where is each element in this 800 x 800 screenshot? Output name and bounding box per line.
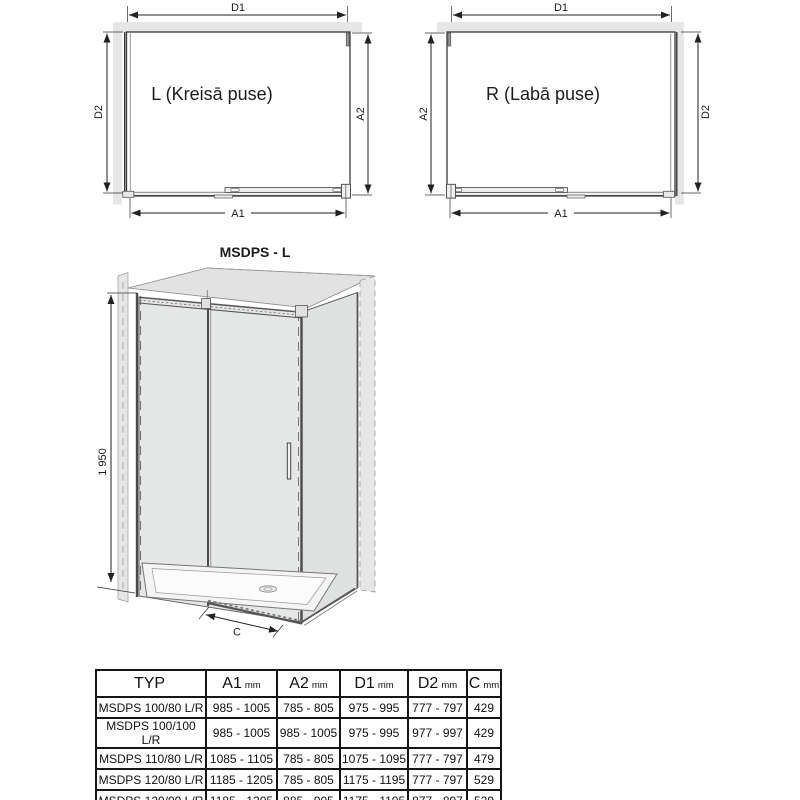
- header-a1: A1mm: [206, 670, 277, 697]
- dimension-table: TYP A1mm A2mm D1mm D2mm Cmm MSDPS 100/80…: [95, 669, 502, 800]
- enclosure-outline: [447, 32, 677, 196]
- iso-title: MSDPS - L: [220, 244, 291, 260]
- side-label-left: L (Kreisā puse): [151, 84, 272, 104]
- dim-label-d1: D1: [554, 2, 568, 14]
- spec-table: TYP A1mm A2mm D1mm D2mm Cmm MSDPS 100/80…: [95, 669, 502, 800]
- dim-label-a2: A2: [418, 107, 430, 120]
- cell-a1: 1185 - 1205: [206, 769, 277, 790]
- cell-d2: 977 - 997: [408, 718, 467, 748]
- dimension-height: 1 950: [97, 293, 137, 593]
- dim-label-height: 1 950: [97, 448, 109, 476]
- dim-label-a2: A2: [355, 107, 367, 120]
- header-d2: D2mm: [408, 670, 467, 697]
- cell-a1: 985 - 1005: [206, 697, 277, 718]
- cell-typ: MSDPS 100/80 L/R: [96, 697, 206, 718]
- dim-label-a1: A1: [231, 208, 244, 220]
- cell-a2: 785 - 805: [277, 769, 340, 790]
- dimension-d1: D1: [452, 2, 672, 22]
- dimension-a1: A1: [130, 198, 346, 220]
- cell-c: 479: [467, 748, 501, 769]
- enclosure-outline: [125, 32, 350, 196]
- cell-a1: 1085 - 1105: [206, 748, 277, 769]
- isometric-view: MSDPS - L: [85, 240, 415, 665]
- wall-right: [360, 276, 375, 592]
- cell-c: 529: [467, 790, 501, 800]
- cell-a2: 985 - 1005: [277, 718, 340, 748]
- header-a2: A2mm: [277, 670, 340, 697]
- left-elevation-diagram: D1 D2 A2 A1 L (Kreisā puse): [90, 0, 380, 225]
- table-row: MSDPS 110/80 L/R 1085 - 1105 785 - 805 1…: [96, 748, 501, 769]
- cell-c: 429: [467, 697, 501, 718]
- cell-a2: 785 - 805: [277, 697, 340, 718]
- table-row: MSDPS 100/100 L/R 985 - 1005 985 - 1005 …: [96, 718, 501, 748]
- cell-d1: 1175 - 1195: [340, 790, 408, 800]
- technical-sheet: D1 D2 A2 A1 L (Kreisā puse): [0, 0, 800, 800]
- dimension-a1: A1: [450, 198, 671, 220]
- cell-typ: MSDPS 120/80 L/R: [96, 769, 206, 790]
- door-handle: [287, 443, 290, 479]
- cell-d1: 975 - 995: [340, 697, 408, 718]
- cell-a2: 785 - 805: [277, 748, 340, 769]
- dim-label-a1: A1: [554, 208, 567, 220]
- cell-a2: 885 - 905: [277, 790, 340, 800]
- cell-d1: 1175 - 1195: [340, 769, 408, 790]
- dimension-d1: D1: [128, 2, 348, 22]
- cell-d1: 1075 - 1095: [340, 748, 408, 769]
- header-d1: D1mm: [340, 670, 408, 697]
- wall-left: [118, 273, 128, 603]
- right-elevation-diagram: D1 A2 D2 A1 R (Labā puse): [415, 0, 710, 225]
- wall-band: [113, 22, 362, 205]
- cell-typ: MSDPS 120/90 L/R: [96, 790, 206, 800]
- cell-c: 429: [467, 718, 501, 748]
- wall-band: [437, 22, 684, 205]
- cell-a1: 985 - 1005: [206, 718, 277, 748]
- cell-typ: MSDPS 110/80 L/R: [96, 748, 206, 769]
- header-typ: TYP: [96, 670, 206, 697]
- table-row: MSDPS 120/80 L/R 1185 - 1205 785 - 805 1…: [96, 769, 501, 790]
- dim-label-d2: D2: [93, 105, 105, 119]
- cell-d2: 877 - 897: [408, 790, 467, 800]
- cell-d2: 777 - 797: [408, 697, 467, 718]
- cell-typ: MSDPS 100/100 L/R: [96, 718, 206, 748]
- cell-d2: 777 - 797: [408, 769, 467, 790]
- side-label-right: R (Labā puse): [486, 84, 600, 104]
- dim-label-c: C: [233, 627, 241, 639]
- cell-a1: 1185 - 1205: [206, 790, 277, 800]
- table-header-row: TYP A1mm A2mm D1mm D2mm Cmm: [96, 670, 501, 697]
- dim-label-d2: D2: [700, 105, 712, 119]
- table-row: MSDPS 120/90 L/R 1185 - 1205 885 - 905 1…: [96, 790, 501, 800]
- cell-c: 529: [467, 769, 501, 790]
- header-c: Cmm: [467, 670, 501, 697]
- dimension-a2: A2: [418, 33, 445, 195]
- cell-d1: 975 - 995: [340, 718, 408, 748]
- dimension-d2: D2: [681, 32, 712, 193]
- dim-label-d1: D1: [231, 2, 245, 14]
- drain: [260, 586, 277, 592]
- dimension-a2: A2: [352, 33, 372, 195]
- table-row: MSDPS 100/80 L/R 985 - 1005 785 - 805 97…: [96, 697, 501, 718]
- cell-d2: 777 - 797: [408, 748, 467, 769]
